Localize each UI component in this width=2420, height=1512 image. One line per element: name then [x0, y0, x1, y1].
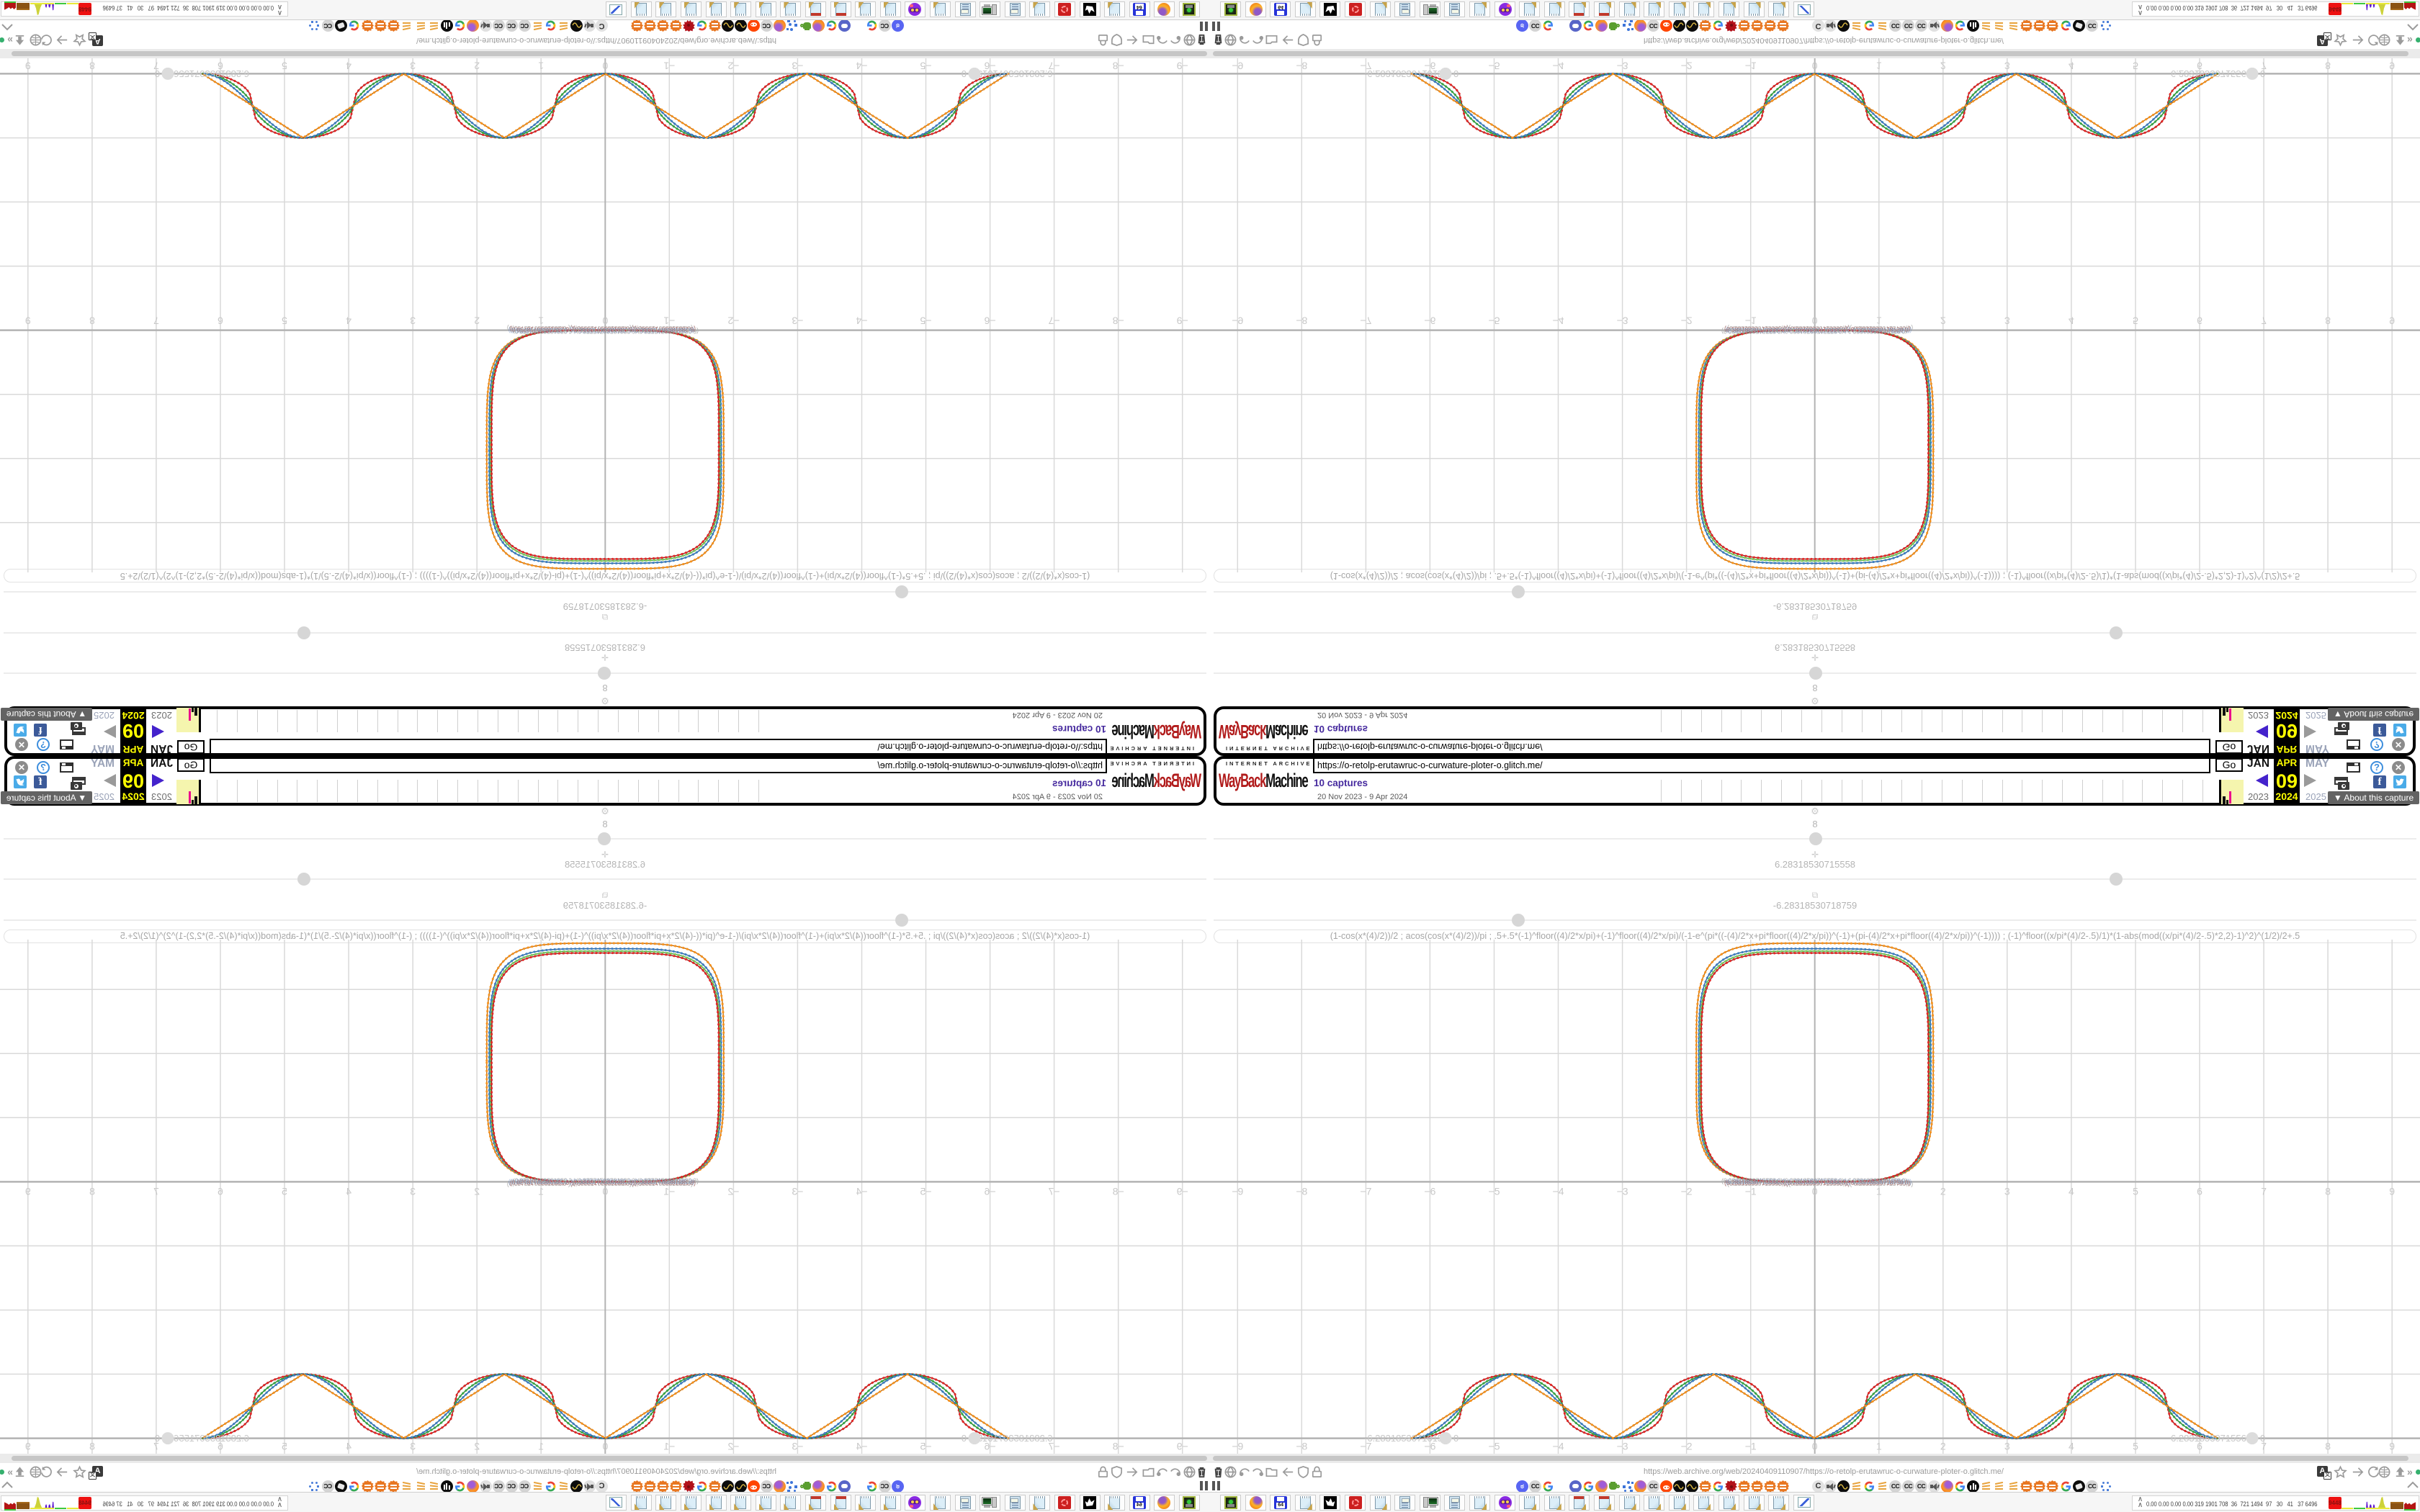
svg-text:6.28318530715560: 6.28318530715560: [169, 68, 249, 79]
svg-text:9: 9: [2389, 315, 2395, 327]
svg-text:0: 0: [1812, 60, 1818, 72]
svg-text:−8: −8: [1296, 1186, 1307, 1197]
svg-text:6: 6: [218, 315, 223, 327]
svg-text:0: 0: [602, 1441, 608, 1452]
svg-text:−3: −3: [792, 1441, 803, 1452]
svg-text:−8: −8: [1296, 60, 1307, 72]
svg-text:−5: −5: [1489, 60, 1500, 72]
svg-text:1: 1: [538, 60, 544, 72]
svg-text:−9: −9: [1177, 1441, 1188, 1452]
svg-text:0: 0: [962, 1433, 967, 1444]
svg-text:−1: −1: [663, 1441, 675, 1452]
svg-text:−9: −9: [1177, 315, 1188, 327]
svg-text:8: 8: [2325, 1186, 2331, 1197]
svg-text:−6: −6: [984, 1186, 995, 1197]
svg-text:4: 4: [346, 1441, 351, 1452]
svg-text:0: 0: [1453, 1433, 1458, 1444]
svg-text:−1: −1: [1745, 60, 1757, 72]
svg-text:−5: −5: [1489, 1186, 1500, 1197]
svg-text:5: 5: [2133, 1186, 2138, 1197]
svg-text:3: 3: [410, 1186, 416, 1197]
svg-text:5: 5: [2133, 315, 2138, 327]
svg-text:−3: −3: [1617, 60, 1628, 72]
svg-text:3: 3: [2004, 60, 2010, 72]
svg-text:−4: −4: [856, 315, 867, 327]
svg-text:−9: −9: [1232, 1186, 1243, 1197]
svg-text:−6: −6: [1424, 1186, 1435, 1197]
svg-text:9: 9: [25, 60, 31, 72]
svg-text:0: 0: [1453, 68, 1458, 79]
svg-text:0: 0: [962, 68, 967, 79]
svg-text:-6.28318530710159: -6.28318530710159: [972, 68, 1056, 79]
svg-text:−8: −8: [1296, 1441, 1307, 1452]
svg-text:6.28318530715560: 6.28318530715560: [2171, 1433, 2251, 1444]
svg-text:1: 1: [1876, 1441, 1882, 1452]
svg-text:−2: −2: [727, 60, 739, 72]
svg-text:3: 3: [410, 1441, 416, 1452]
svg-text:9: 9: [2389, 1441, 2395, 1452]
svg-text:5: 5: [282, 315, 287, 327]
svg-text:−2: −2: [1681, 1441, 1693, 1452]
svg-text:−4: −4: [1553, 60, 1564, 72]
svg-text:−7: −7: [1048, 315, 1059, 327]
svg-text:−3: −3: [792, 315, 803, 327]
svg-text:5: 5: [2133, 60, 2138, 72]
svg-text:−7: −7: [1360, 1186, 1371, 1197]
svg-text:−9: −9: [1232, 1441, 1243, 1452]
svg-text:2: 2: [474, 1186, 480, 1197]
svg-text:(6.28318530715558,0)(6.2831853: (6.28318530715558,0)(6.28318530715558,0)…: [1726, 1178, 1912, 1185]
svg-text:−9: −9: [1177, 60, 1188, 72]
svg-text:1: 1: [538, 1441, 544, 1452]
svg-text:0: 0: [1812, 1441, 1818, 1452]
svg-text:-6.28318530710159: -6.28318530710159: [972, 1433, 1056, 1444]
svg-text:9: 9: [25, 1441, 31, 1452]
svg-text:0: 0: [155, 68, 160, 79]
svg-text:9: 9: [25, 1186, 31, 1197]
svg-text:4: 4: [2069, 1186, 2074, 1197]
svg-text:−2: −2: [727, 315, 739, 327]
svg-text:(6.28318530715558,0)(6.2831853: (6.28318530715558,0)(6.28318530715558,0)…: [1726, 327, 1912, 334]
svg-text:−3: −3: [1617, 1186, 1628, 1197]
svg-text:−8: −8: [1113, 1441, 1124, 1452]
svg-text:9: 9: [2389, 60, 2395, 72]
svg-text:−3: −3: [792, 60, 803, 72]
svg-text:−5: −5: [920, 1441, 931, 1452]
svg-text:6: 6: [218, 1186, 223, 1197]
svg-text:6.28318530715560: 6.28318530715560: [169, 1433, 249, 1444]
svg-text:−5: −5: [920, 1186, 931, 1197]
svg-text:6: 6: [2197, 1186, 2202, 1197]
svg-text:4: 4: [346, 1186, 351, 1197]
svg-text:7: 7: [153, 315, 159, 327]
svg-text:−1: −1: [663, 60, 675, 72]
svg-text:−4: −4: [856, 60, 867, 72]
svg-text:−9: −9: [1232, 60, 1243, 72]
svg-text:3: 3: [2004, 315, 2010, 327]
svg-text:8: 8: [2325, 315, 2331, 327]
svg-text:7: 7: [2261, 315, 2267, 327]
svg-text:−8: −8: [1296, 315, 1307, 327]
svg-text:6.28318530715560: 6.28318530715560: [2171, 68, 2251, 79]
svg-text:−2: −2: [1681, 315, 1693, 327]
svg-text:2: 2: [474, 1441, 480, 1452]
svg-text:−5: −5: [1489, 315, 1500, 327]
svg-text:−2: −2: [1681, 1186, 1693, 1197]
svg-text:−2: −2: [1681, 60, 1693, 72]
svg-text:0: 0: [602, 60, 608, 72]
svg-text:8: 8: [2325, 60, 2331, 72]
svg-text:−4: −4: [856, 1186, 867, 1197]
svg-text:2: 2: [474, 315, 480, 327]
svg-text:4: 4: [2069, 315, 2074, 327]
svg-text:−9: −9: [1177, 1186, 1188, 1197]
svg-text:3: 3: [2004, 1186, 2010, 1197]
svg-text:4: 4: [2069, 1441, 2074, 1452]
svg-text:−4: −4: [856, 1441, 867, 1452]
svg-text:5: 5: [2133, 1441, 2138, 1452]
svg-text:−7: −7: [1360, 315, 1371, 327]
svg-text:−9: −9: [1232, 315, 1243, 327]
svg-text:2: 2: [474, 60, 480, 72]
svg-text:8: 8: [89, 1441, 95, 1452]
svg-text:8: 8: [2325, 1441, 2331, 1452]
svg-text:-6.28318530710159: -6.28318530710159: [1364, 68, 1448, 79]
svg-text:−5: −5: [920, 60, 931, 72]
svg-text:6: 6: [2197, 315, 2202, 327]
svg-text:−3: −3: [1617, 315, 1628, 327]
svg-text:0: 0: [2260, 68, 2265, 79]
svg-text:2: 2: [1940, 1441, 1946, 1452]
svg-text:−6: −6: [1424, 315, 1435, 327]
svg-text:−2: −2: [727, 1441, 739, 1452]
svg-text:-6.28318530710159: -6.28318530710159: [1364, 1433, 1448, 1444]
svg-text:−3: −3: [792, 1186, 803, 1197]
svg-text:(6.28318530715558,0)(6.2831853: (6.28318530715558,0)(6.28318530715558,0)…: [508, 1178, 694, 1185]
svg-text:8: 8: [89, 60, 95, 72]
svg-text:8: 8: [89, 1186, 95, 1197]
svg-text:1: 1: [1876, 60, 1882, 72]
svg-text:4: 4: [346, 60, 351, 72]
svg-text:−4: −4: [1553, 1441, 1564, 1452]
svg-text:−8: −8: [1113, 315, 1124, 327]
svg-text:−4: −4: [1553, 1186, 1564, 1197]
svg-text:−3: −3: [1617, 1441, 1628, 1452]
svg-text:3: 3: [410, 60, 416, 72]
svg-text:−5: −5: [920, 315, 931, 327]
svg-text:−8: −8: [1113, 1186, 1124, 1197]
svg-text:0: 0: [2260, 1433, 2265, 1444]
svg-text:7: 7: [2261, 1186, 2267, 1197]
svg-text:2: 2: [1940, 1186, 1946, 1197]
svg-text:−8: −8: [1113, 60, 1124, 72]
svg-text:−2: −2: [727, 1186, 739, 1197]
svg-text:−1: −1: [1745, 1441, 1757, 1452]
svg-text:3: 3: [410, 315, 416, 327]
svg-text:9: 9: [2389, 1186, 2395, 1197]
svg-text:0: 0: [155, 1433, 160, 1444]
svg-text:−7: −7: [1048, 1186, 1059, 1197]
svg-text:4: 4: [346, 315, 351, 327]
svg-text:(6.28318530715558,0)(6.2831853: (6.28318530715558,0)(6.28318530715558,0)…: [508, 327, 694, 334]
svg-text:−6: −6: [984, 315, 995, 327]
svg-text:5: 5: [282, 1186, 287, 1197]
svg-text:−4: −4: [1553, 315, 1564, 327]
svg-text:5: 5: [282, 1441, 287, 1452]
svg-text:2: 2: [1940, 60, 1946, 72]
svg-text:−5: −5: [1489, 1441, 1500, 1452]
svg-text:5: 5: [282, 60, 287, 72]
svg-text:2: 2: [1940, 315, 1946, 327]
svg-text:3: 3: [2004, 1441, 2010, 1452]
svg-text:8: 8: [89, 315, 95, 327]
svg-text:9: 9: [25, 315, 31, 327]
svg-text:4: 4: [2069, 60, 2074, 72]
svg-text:7: 7: [153, 1186, 159, 1197]
